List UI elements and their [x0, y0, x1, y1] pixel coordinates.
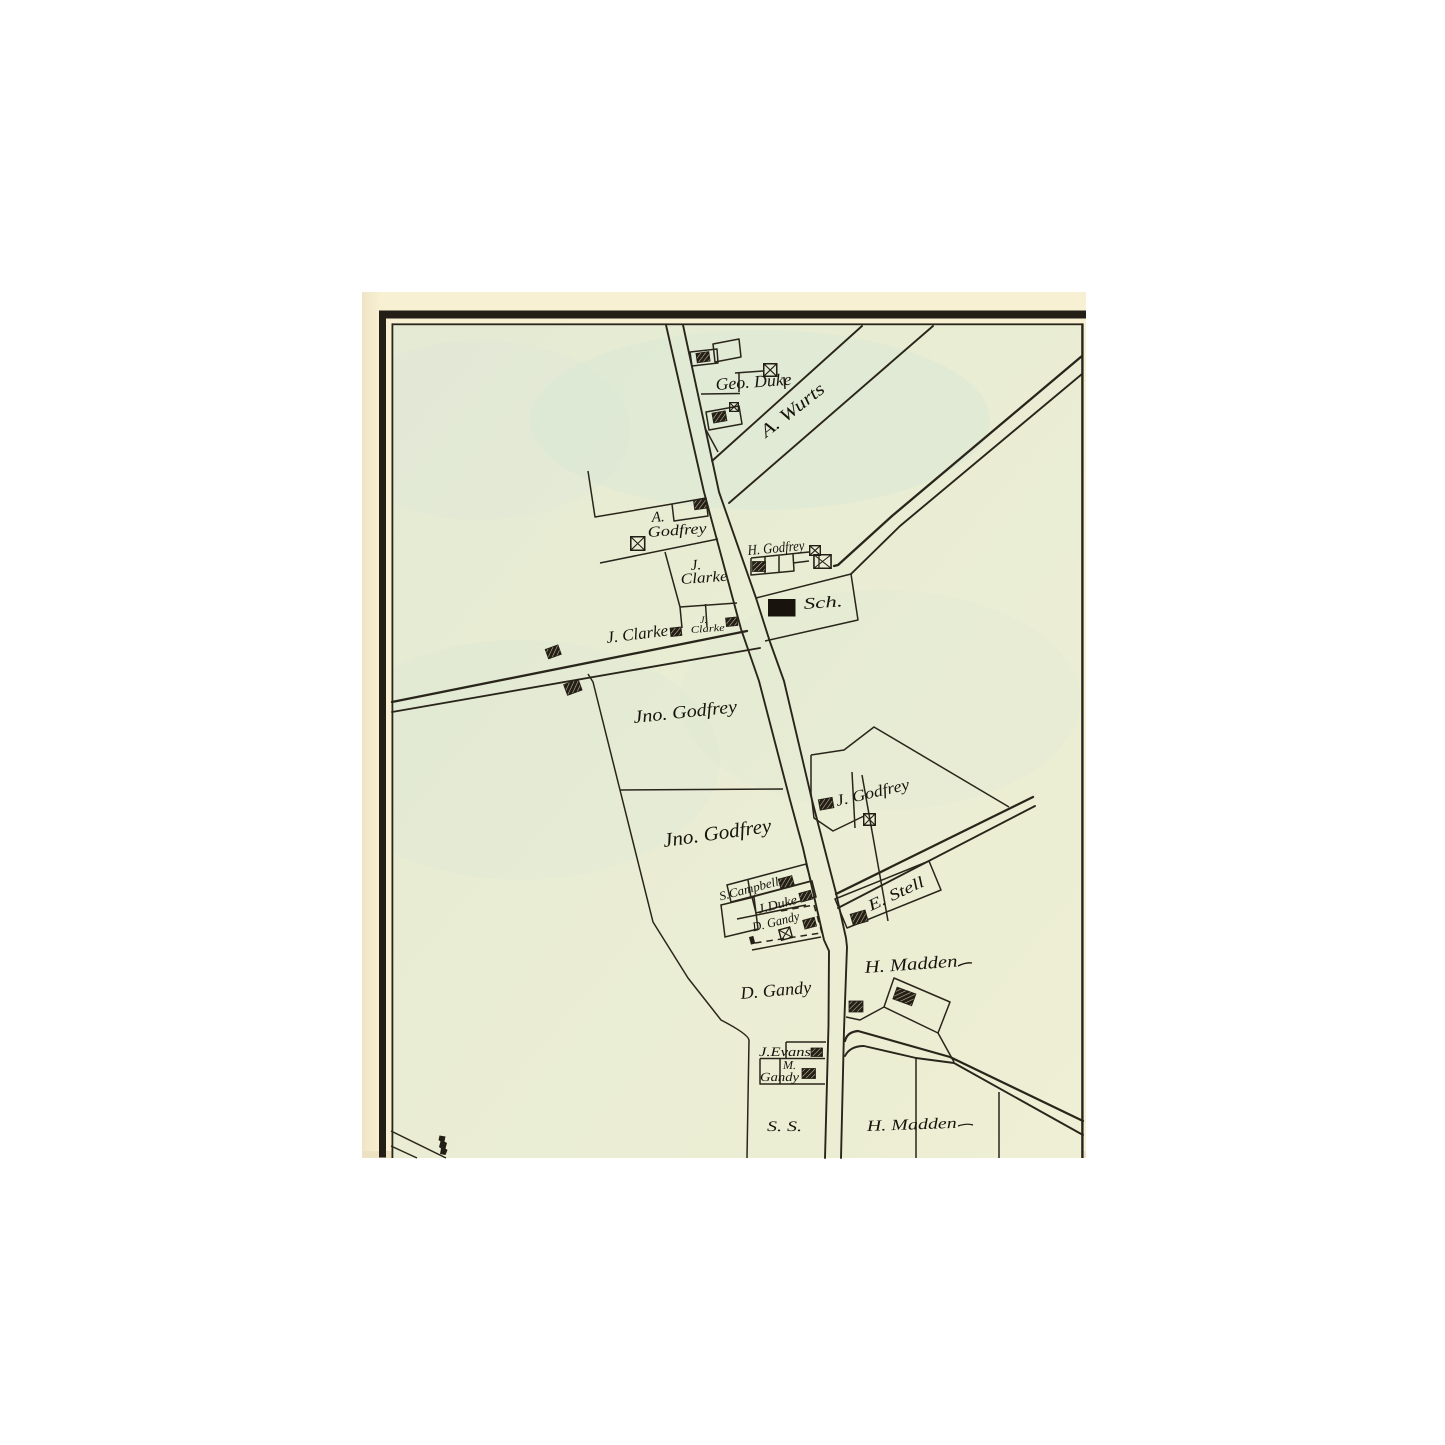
svg-text:Clarke: Clarke [680, 569, 728, 588]
svg-text:Sch.: Sch. [803, 593, 843, 613]
svg-text:H. Madden: H. Madden [865, 1115, 957, 1135]
svg-text:S. S.: S. S. [767, 1119, 802, 1135]
svg-text:Gandy: Gandy [760, 1070, 800, 1084]
svg-text:J.Evans: J.Evans [759, 1044, 811, 1059]
